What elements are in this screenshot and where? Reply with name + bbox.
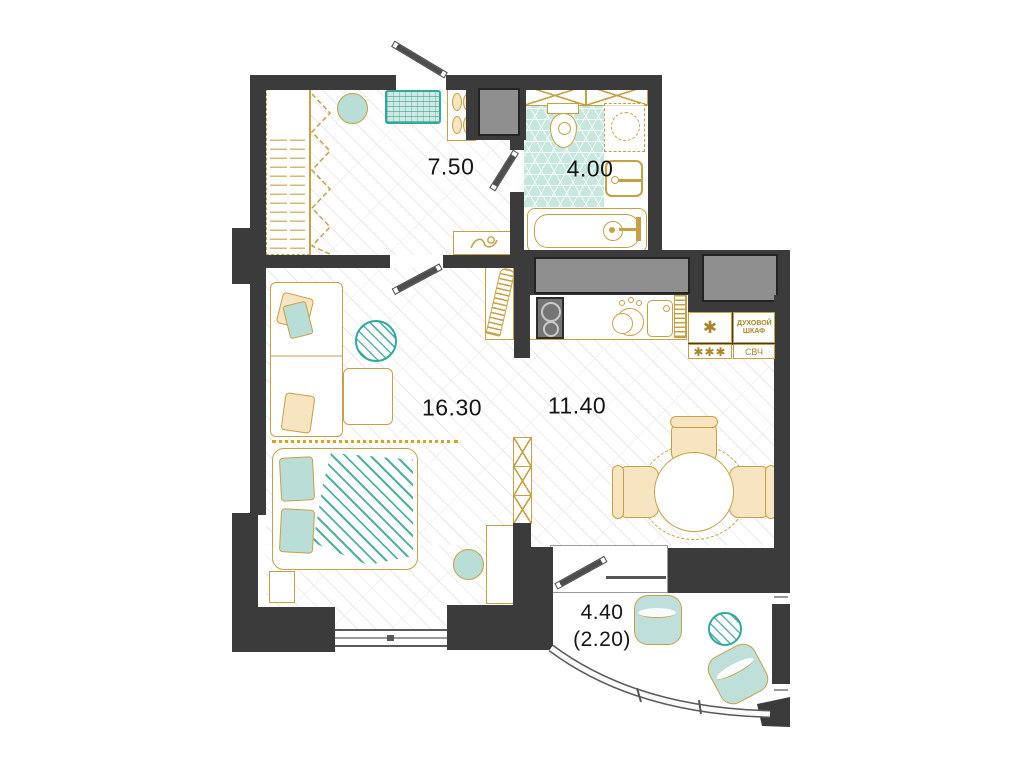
armchair-seam bbox=[638, 608, 676, 618]
burner-icon bbox=[541, 302, 561, 322]
balcony-area-label: 4.40 bbox=[581, 601, 624, 625]
ventilation-duct bbox=[534, 257, 690, 294]
wardrobe-front-line bbox=[309, 88, 311, 255]
sofa-pillow bbox=[281, 392, 316, 434]
tall-shelf-cell bbox=[513, 495, 532, 524]
armchair-seam bbox=[714, 654, 756, 683]
bottom-window bbox=[335, 629, 447, 647]
floor-plan: ✱ ДУХОВОЙ ШКАФ ✱✱✱ СВЧ bbox=[0, 0, 1024, 768]
desk-stool bbox=[453, 549, 484, 580]
bathtub-drain-dot bbox=[609, 227, 615, 233]
bathtub-inner bbox=[534, 214, 640, 248]
microwave-label: СВЧ bbox=[745, 347, 763, 357]
water-drop-icon bbox=[619, 300, 625, 306]
nightstand bbox=[269, 571, 295, 603]
sofa-chaise bbox=[343, 368, 393, 425]
balcony-side-window bbox=[774, 689, 788, 691]
decor-squiggle-icon bbox=[468, 234, 502, 252]
drying-rack bbox=[674, 295, 686, 338]
freezer-cell: ✱✱✱ bbox=[688, 344, 732, 359]
balcony-window-pane bbox=[606, 576, 666, 579]
cooktop bbox=[536, 297, 564, 339]
kitchen-sink-tap bbox=[663, 305, 670, 312]
wall-left-pier bbox=[232, 228, 250, 284]
chair-back bbox=[612, 465, 624, 519]
chair-back bbox=[670, 416, 718, 428]
dining-chair-left bbox=[617, 466, 659, 518]
ironing-board-icon bbox=[486, 267, 516, 337]
fridge-star-symbol: ✱ bbox=[703, 318, 717, 338]
balcony-armchair bbox=[703, 639, 773, 709]
wall-bottom-left bbox=[232, 607, 335, 652]
wall-kitchen-stub bbox=[514, 255, 530, 358]
wall-left bbox=[250, 75, 266, 515]
window-mullion bbox=[387, 635, 394, 641]
sofa-seam bbox=[271, 355, 342, 357]
burner-icon bbox=[543, 321, 559, 337]
wall-right bbox=[774, 295, 790, 548]
oven-label: ДУХОВОЙ ШКАФ bbox=[737, 320, 771, 336]
shoe-icon bbox=[452, 93, 462, 111]
freezer-stars-symbol: ✱✱✱ bbox=[693, 345, 726, 359]
kitchen-sink bbox=[647, 300, 673, 337]
fridge-cell: ✱ bbox=[688, 312, 732, 343]
washing-machine bbox=[604, 103, 645, 152]
bathroom-area-label: 4.00 bbox=[567, 156, 614, 183]
washing-machine-drum bbox=[611, 112, 640, 141]
wall-balcony-right bbox=[772, 604, 790, 684]
wardrobe bbox=[266, 88, 310, 255]
round-rug bbox=[355, 320, 397, 362]
wall-curve-end bbox=[757, 697, 790, 727]
living-room-area-label: 16.30 bbox=[422, 395, 482, 422]
dish-icon bbox=[612, 313, 633, 334]
desk bbox=[486, 525, 514, 604]
wall-balcony-separator bbox=[668, 548, 790, 593]
oven-cell: ДУХОВОЙ ШКАФ bbox=[733, 312, 775, 343]
wardrobe-hangers-left bbox=[270, 137, 287, 249]
tall-shelf-cell bbox=[513, 437, 532, 467]
balcony-armchair bbox=[634, 595, 682, 645]
wall-top-left bbox=[250, 75, 396, 90]
water-drop-icon bbox=[628, 297, 634, 303]
bathtub-tap bbox=[636, 217, 641, 241]
doormat bbox=[385, 90, 441, 124]
toilet-flush-icon bbox=[558, 122, 571, 135]
entrance-door bbox=[391, 41, 448, 79]
wall-hall-living-right bbox=[443, 255, 524, 268]
ironing-cabinet bbox=[485, 262, 514, 340]
zone-divider-dotted bbox=[272, 440, 458, 443]
wardrobe-hangers-right bbox=[290, 137, 305, 249]
hallway-stool bbox=[337, 93, 368, 124]
balcony-side-window bbox=[774, 596, 788, 598]
kitchen-area-label: 11.40 bbox=[548, 393, 606, 420]
balcony-side-table bbox=[708, 612, 742, 646]
wall-hall-bath-lower bbox=[510, 192, 524, 255]
bathtub bbox=[527, 208, 647, 253]
wall-bath-right bbox=[648, 75, 662, 255]
hallway-shelf bbox=[453, 231, 517, 255]
sink-faucet-icon bbox=[618, 179, 642, 182]
glazing-mullion bbox=[637, 688, 641, 702]
hallway-area-label: 7.50 bbox=[428, 154, 475, 181]
water-drop-icon bbox=[636, 300, 642, 306]
dining-chair-right bbox=[729, 466, 771, 518]
balcony-reduced-area-label: (2.20) bbox=[573, 628, 631, 652]
bed-pillow bbox=[279, 456, 315, 502]
microwave-cell: СВЧ bbox=[733, 344, 775, 359]
shoe-icon bbox=[452, 116, 462, 134]
glazing-mullion bbox=[699, 700, 701, 714]
balcony-door-window-unit bbox=[550, 545, 668, 593]
ventilation-shaft bbox=[478, 88, 520, 136]
dining-table bbox=[654, 452, 734, 532]
bed-pillow bbox=[279, 508, 315, 554]
bed-blanket bbox=[313, 453, 413, 565]
wall-hall-living-left bbox=[266, 255, 390, 268]
tall-shelf-cell bbox=[513, 466, 532, 496]
ventilation-shaft bbox=[702, 254, 778, 302]
